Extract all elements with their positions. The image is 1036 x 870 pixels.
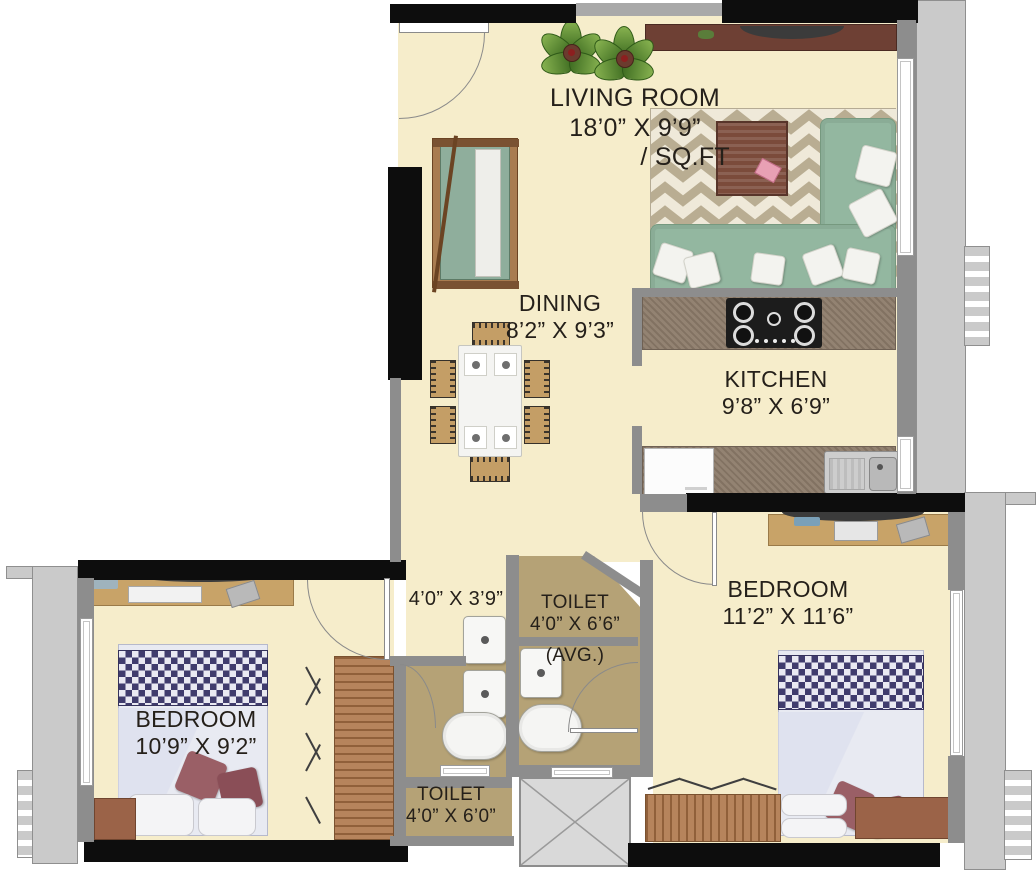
bedroom-master-entry-floor (519, 512, 640, 562)
entry-door-leaf (399, 22, 489, 33)
exterior-ledge-left (32, 566, 78, 864)
room-dimensions: 11’2” X 11’6” (688, 603, 888, 630)
bed-pillow-white (781, 818, 847, 838)
dining-table (458, 345, 522, 457)
bedroom-master-door-leaf (712, 512, 717, 586)
wall (84, 840, 408, 862)
room-dimensions: 8’2” X 9’3” (455, 317, 665, 344)
wall (390, 4, 576, 23)
room-name: KITCHEN (676, 366, 876, 393)
desk-accessory-icon (92, 579, 118, 589)
area-suffix: / SQ.FT (500, 143, 770, 173)
room-name: DINING (455, 290, 665, 317)
ledge-serration-left (17, 770, 33, 858)
bed-headboard-runner (118, 650, 268, 706)
ledge-serration-right-top (964, 246, 990, 346)
window (80, 618, 93, 786)
room-note: (AVG.) (510, 645, 640, 667)
toilet-attached-door-leaf (570, 728, 638, 733)
room-name: BEDROOM (116, 706, 276, 733)
wall (632, 288, 916, 297)
window (950, 590, 963, 756)
room-dimensions: 4’0” X 3’9” (390, 588, 522, 612)
floor-plan: LIVING ROOM 18’0” X 9’9” / SQ.FT DINING … (0, 0, 1036, 870)
bedroom-master-label: BEDROOM 11’2” X 11’6” (688, 576, 888, 630)
desk-accessory-icon (794, 517, 820, 526)
bed-pillow-white (781, 794, 847, 816)
window (897, 58, 914, 256)
refrigerator-icon (644, 448, 714, 497)
toilet-wc-icon (442, 712, 508, 760)
wardrobe (645, 794, 781, 842)
wall (628, 843, 940, 867)
room-name: BEDROOM (688, 576, 888, 603)
dresser (855, 797, 949, 839)
bedroom-second-label: BEDROOM 10’9” X 9’2” (116, 706, 276, 760)
wall (390, 836, 514, 846)
room-name: TOILET (510, 592, 640, 614)
room-name: TOILET (390, 784, 512, 806)
room-dimensions: 18’0” X 9’9” (500, 114, 770, 144)
lift-shaft (519, 777, 631, 867)
wall (722, 0, 918, 23)
bed-pillow-white (128, 794, 194, 836)
room-name: LIVING ROOM (500, 84, 770, 114)
washbasin-icon (463, 616, 506, 664)
lift-cross-icon (521, 779, 629, 865)
kitchen-label: KITCHEN 9’8” X 6’9” (676, 366, 876, 420)
plant-icon (544, 20, 598, 84)
sofa-pillow (750, 252, 786, 286)
dining-chair (430, 406, 456, 444)
bed-pillow-white (198, 798, 256, 836)
wall (948, 512, 965, 590)
sofa-pillow (841, 247, 881, 285)
plant-icon (597, 26, 651, 90)
room-dimensions: 4’0” X 6’6” (510, 614, 640, 636)
window (897, 436, 914, 492)
console-decor-icon (698, 30, 714, 39)
wall (640, 560, 653, 777)
wardrobe (334, 656, 394, 840)
ledge-serration-right-bottom (1004, 770, 1032, 860)
room-dimensions: 4’0” X 6’0” (390, 806, 512, 828)
dining-label: DINING 8’2” X 9’3” (455, 290, 665, 344)
washbasin-icon (463, 670, 506, 718)
room-dimensions: 9’8” X 6’9” (676, 393, 876, 420)
passage-label: 4’0” X 3’9” (390, 588, 522, 612)
wall (948, 756, 965, 843)
toilet-common-label: TOILET 4’0” X 6’0” (390, 784, 512, 829)
dining-chair (524, 360, 550, 398)
wall (640, 494, 687, 512)
toilet-attached-label: TOILET 4’0” X 6’6” (AVG.) (510, 592, 640, 667)
room-dimensions: 10’9” X 9’2” (116, 733, 276, 760)
exterior-ledge-right-top (916, 0, 966, 502)
exterior-ledge-right-bottom (964, 492, 1006, 870)
dining-chair (430, 360, 456, 398)
laptop-icon (128, 586, 202, 603)
gas-hob-icon (726, 298, 822, 348)
wall (686, 493, 965, 512)
door-threshold (440, 765, 490, 777)
dresser (94, 798, 136, 840)
dining-chair (524, 406, 550, 444)
laptop-icon (834, 521, 878, 541)
wall (390, 378, 401, 562)
wall (388, 167, 422, 380)
living-room-label: LIVING ROOM 18’0” X 9’9” / SQ.FT (500, 84, 770, 173)
wall (632, 426, 642, 494)
wall (78, 560, 406, 580)
door-threshold (551, 767, 613, 778)
kitchen-sink-icon (824, 451, 900, 494)
wall (576, 3, 722, 16)
dining-chair (470, 456, 510, 482)
bed-headboard-runner (778, 655, 924, 710)
